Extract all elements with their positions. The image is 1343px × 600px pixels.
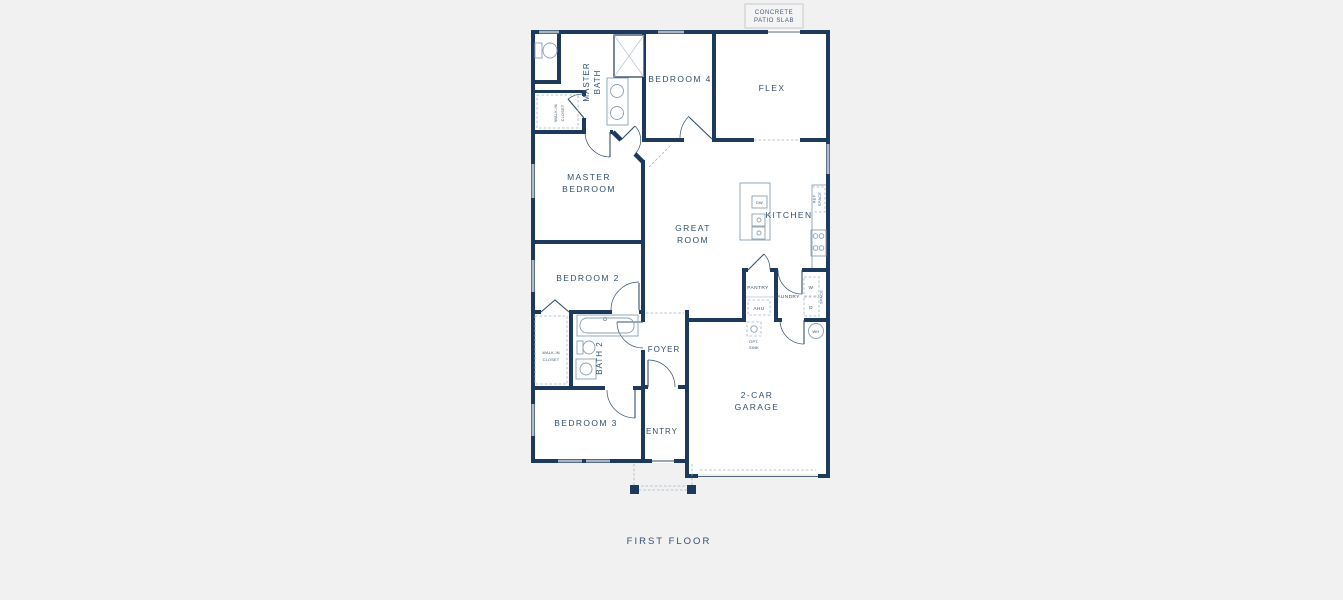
label-dryer: D xyxy=(809,305,813,311)
porch-post-left xyxy=(630,485,639,494)
room-label-foyer: FOYER xyxy=(648,345,681,354)
patio-note-line1: CONCRETE xyxy=(755,10,793,16)
label-washer: W xyxy=(809,285,814,291)
window-bedroom3-front-1 xyxy=(558,459,582,463)
window-master-bath xyxy=(539,30,559,34)
window-bedroom3-side xyxy=(531,404,535,436)
room-label-master-closet-line2: CLOSET xyxy=(560,104,565,121)
room-label-master-closet-line1: WALK-IN xyxy=(553,104,558,121)
floor-plan-canvas: CONCRETE PATIO SLAB xyxy=(0,0,1343,600)
label-ref-line1: REF xyxy=(812,194,817,203)
room-label-great-room-line2: ROOM xyxy=(677,235,709,245)
porch-post-right xyxy=(687,485,696,494)
label-water-heater: WH xyxy=(813,329,820,334)
room-label-master-bedroom-line1: MASTER xyxy=(567,172,611,182)
window-bedroom4 xyxy=(658,30,684,34)
room-label-closet2-line1: WALK-IN xyxy=(542,350,559,355)
room-label-closet2-line2: CLOSET xyxy=(543,357,560,362)
room-label-master-bath-line2: BATH xyxy=(593,70,602,95)
room-label-laundry: LAUNDRY xyxy=(774,294,800,300)
room-label-bath2: BATH 2 xyxy=(595,341,604,374)
window-great-room xyxy=(826,144,830,174)
room-label-kitchen: KITCHEN xyxy=(765,210,812,220)
label-dishwasher: DW xyxy=(756,200,763,205)
label-opt-sink-line1: OPT. xyxy=(749,339,758,344)
patio-slab-note: CONCRETE PATIO SLAB xyxy=(745,4,803,28)
patio-note-line2: PATIO SLAB xyxy=(754,18,794,24)
window-bedroom3-front-2 xyxy=(586,459,610,463)
plan-caption: FIRST FLOOR xyxy=(627,536,712,547)
room-label-bedroom4: BEDROOM 4 xyxy=(648,74,712,84)
room-label-bedroom2: BEDROOM 2 xyxy=(556,273,620,283)
label-wd-note: SPACE xyxy=(819,290,824,304)
label-ref-line2: SPACE xyxy=(817,192,822,206)
room-label-bedroom3: BEDROOM 3 xyxy=(554,418,618,428)
room-label-master-bedroom-line2: BEDROOM xyxy=(562,184,616,194)
shower-master xyxy=(614,35,644,77)
label-ahu: AHU xyxy=(753,306,764,312)
patio-slider-door xyxy=(768,30,800,34)
room-label-pantry: PANTRY xyxy=(747,285,769,291)
room-label-flex: FLEX xyxy=(759,83,786,93)
page: CONCRETE PATIO SLAB xyxy=(0,0,1343,600)
room-label-great-room-line1: GREAT xyxy=(675,223,711,233)
window-master-bedroom xyxy=(531,164,535,198)
room-label-garage-line1: 2-CAR xyxy=(741,390,774,400)
room-label-garage-line2: GARAGE xyxy=(735,402,780,412)
label-opt-sink-line2: SINK xyxy=(749,345,759,350)
room-label-master-bath-line1: MASTER xyxy=(582,62,591,101)
window-bedroom2 xyxy=(531,260,535,292)
room-label-entry: ENTRY xyxy=(646,427,678,436)
